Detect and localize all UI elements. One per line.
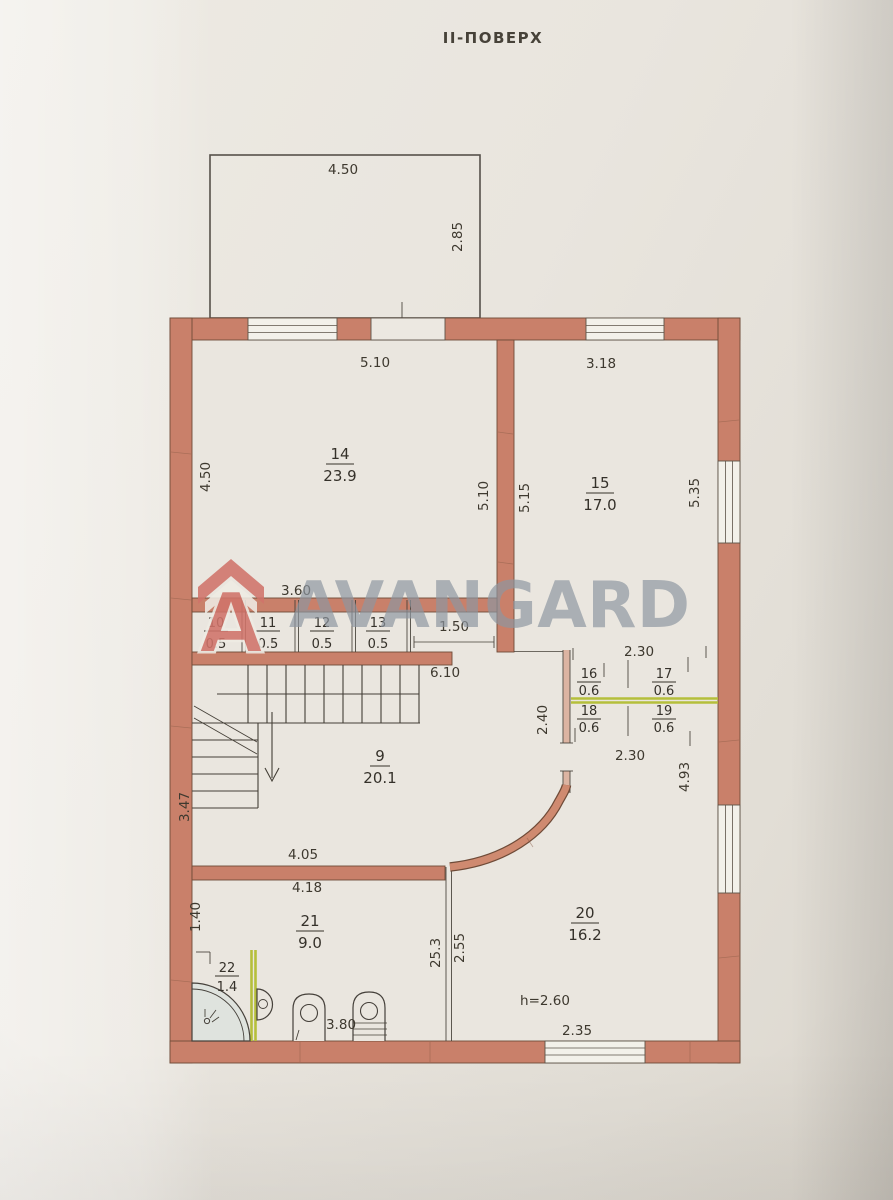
dim-label: 5.15 xyxy=(517,483,533,513)
room-number: 21 xyxy=(300,912,319,930)
dim-label: 2.40 xyxy=(535,705,551,735)
room-area: 17.0 xyxy=(583,496,616,514)
wall-right xyxy=(718,318,740,1063)
brand-logo-icon: A xyxy=(198,559,264,672)
wall-bottom xyxy=(170,1041,740,1063)
room-number: 19 xyxy=(656,704,673,719)
brand-logo-letter: A xyxy=(198,574,263,672)
room-number: 15 xyxy=(590,474,609,492)
dim-label: 4.18 xyxy=(292,880,322,896)
dim-label: 4.50 xyxy=(198,462,214,492)
dim-label: 2.55 xyxy=(452,933,468,963)
dim-label: 2.30 xyxy=(615,748,645,764)
dim-label: 2.35 xyxy=(562,1023,592,1039)
room-number: 20 xyxy=(575,904,594,922)
room-area: 0.6 xyxy=(654,684,675,699)
dim-label: 1.40 xyxy=(188,902,204,932)
brand-text: AVANGARD xyxy=(289,569,691,643)
dim-label: 4.50 xyxy=(328,162,358,178)
room-number: 17 xyxy=(656,667,673,682)
room-area: 20.1 xyxy=(363,769,396,787)
dim-label: 2.85 xyxy=(450,222,466,252)
room-area: 0.6 xyxy=(579,684,600,699)
window-right-room15 xyxy=(718,461,740,543)
room-number: 9 xyxy=(375,747,385,765)
dim-label: 6.10 xyxy=(430,665,460,681)
dim-label: 4.05 xyxy=(288,847,318,863)
dim-label: 5.10 xyxy=(360,355,390,371)
wall-room21-top xyxy=(192,866,445,880)
room-area: 9.0 xyxy=(298,934,322,952)
room-area: 0.6 xyxy=(654,721,675,736)
room-number: 14 xyxy=(330,445,349,463)
floor-plan-svg: ІІ-ПОВЕРХ xyxy=(0,0,893,1200)
dim-label: 3.18 xyxy=(586,356,616,372)
window-top-right xyxy=(586,318,664,340)
room-number: 18 xyxy=(581,704,598,719)
page-title: ІІ-ПОВЕРХ xyxy=(443,29,543,47)
room-number: 16 xyxy=(581,667,598,682)
dim-label: 3.47 xyxy=(177,792,193,822)
dim-label: 3.80 xyxy=(326,1017,356,1033)
balcony-door-opening xyxy=(371,318,445,340)
ceiling-height-note: h=2.60 xyxy=(520,993,570,1009)
toilet-icon xyxy=(293,994,325,1041)
wall-left xyxy=(170,318,192,1063)
dim-label: 2.30 xyxy=(624,644,654,660)
room-area: 0.6 xyxy=(579,721,600,736)
window-right-room20 xyxy=(718,805,740,893)
dim-label: 4.93 xyxy=(677,762,693,792)
window-bottom-room20 xyxy=(545,1041,645,1063)
floor-plan-photo: ІІ-ПОВЕРХ xyxy=(0,0,893,1200)
balcony xyxy=(210,155,480,318)
toilet-icon xyxy=(353,992,387,1041)
dim-label: 25.3 xyxy=(428,938,444,968)
room-number: 22 xyxy=(219,961,236,976)
room-area: 23.9 xyxy=(323,467,356,485)
dim-label: 5.10 xyxy=(476,481,492,511)
window-top-left xyxy=(248,318,337,340)
room-area: 1.4 xyxy=(217,980,238,995)
dim-label: 5.35 xyxy=(687,478,703,508)
room-area: 16.2 xyxy=(568,926,601,944)
